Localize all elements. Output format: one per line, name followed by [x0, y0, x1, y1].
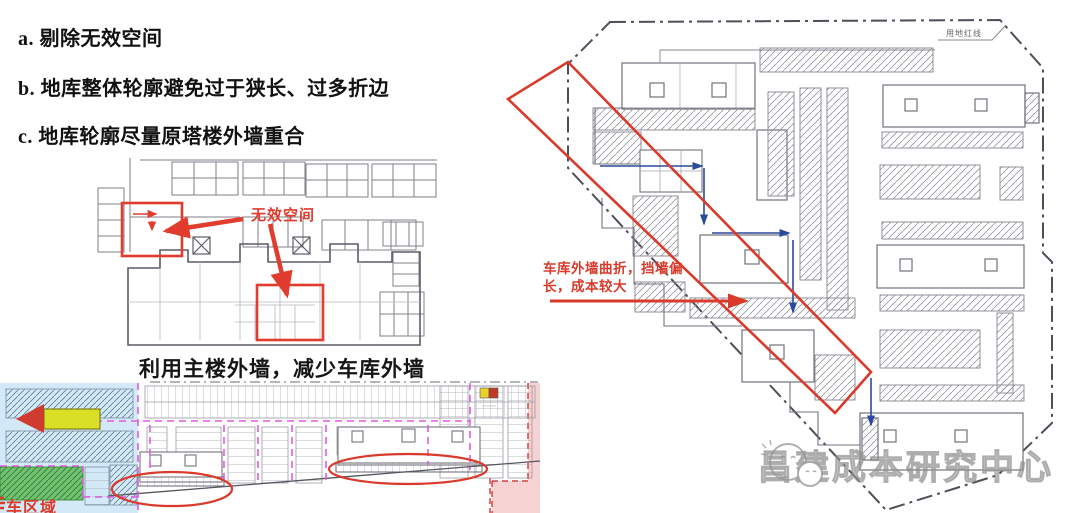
- floor-plan-invalid-space: [85, 150, 545, 360]
- note-a: a. 剔除无效空间: [18, 22, 163, 51]
- plan1-linework: [98, 158, 437, 345]
- garage-wall-note: 车库外墙曲折，挡墙偏长，成本较大: [543, 260, 685, 295]
- note-c: c. 地库轮廓尽量原塔楼外墙重合: [18, 120, 305, 149]
- floor-plan-colored: [0, 380, 545, 513]
- slide: a. 剔除无效空间 b. 地库整体轮廓避免过于狭长、过多折边 c. 地库轮廓尽量…: [0, 0, 1080, 513]
- parking-zone-label: 车区域: [6, 494, 57, 513]
- plan1-caption: 利用主楼外墙，减少车库外墙: [139, 353, 425, 383]
- invalid-space-label: 无效空间: [251, 204, 315, 225]
- note-b: b. 地库整体轮廓避免过于狭长、过多折边: [18, 72, 389, 101]
- site-plan: [500, 0, 1080, 513]
- site-boundary-label: 用地红线: [946, 28, 982, 39]
